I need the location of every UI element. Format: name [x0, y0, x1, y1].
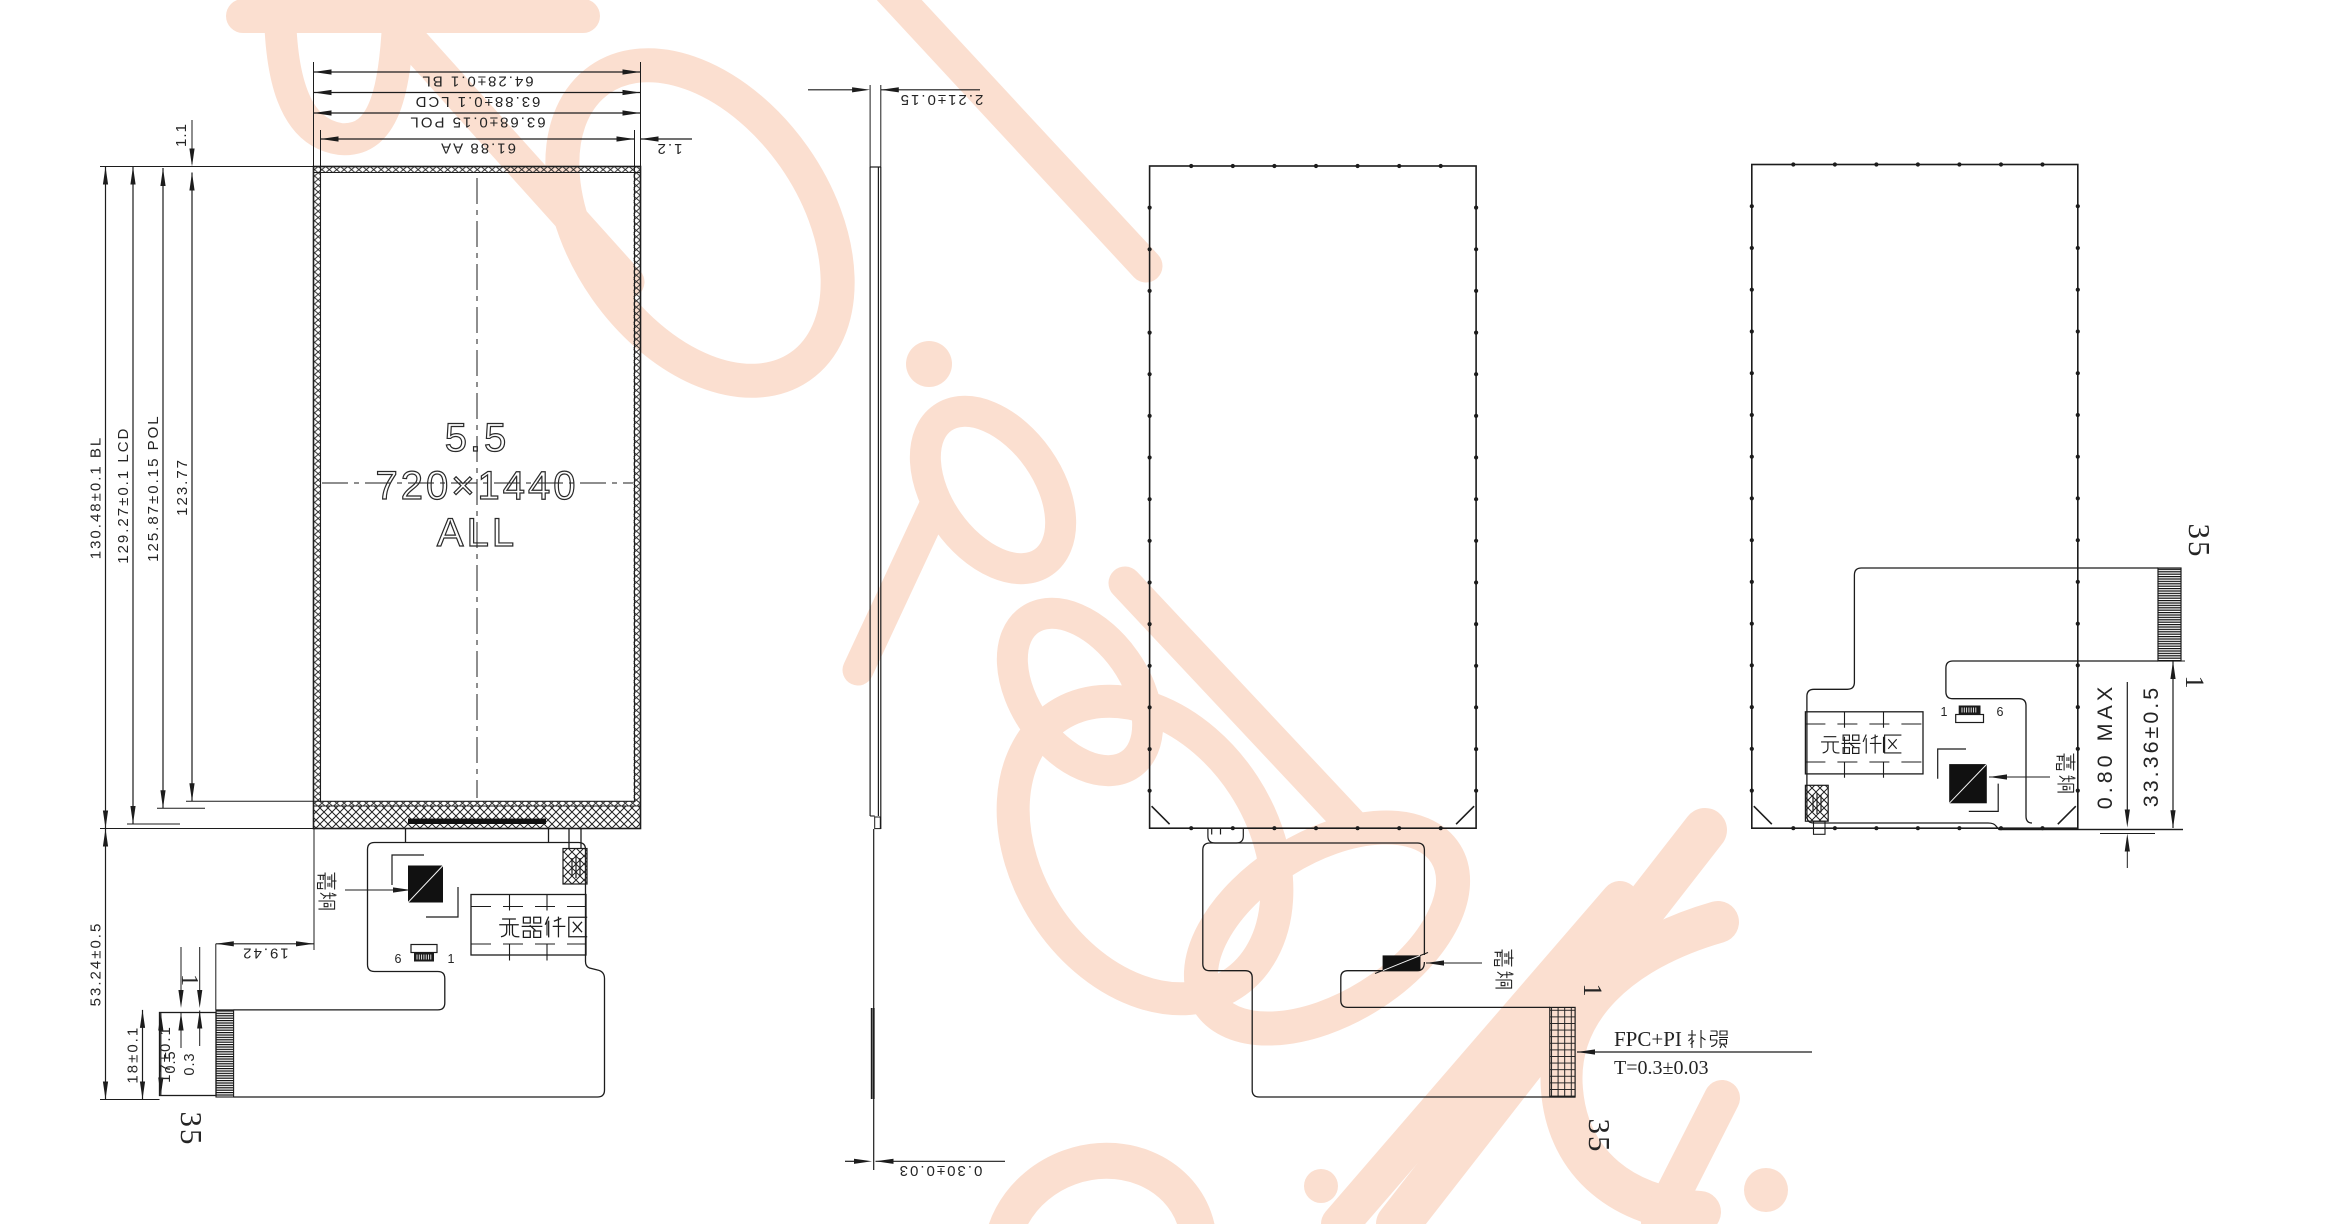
svg-text:63.68±0.15 POL: 63.68±0.15 POL — [408, 114, 545, 131]
svg-text:18±0.1: 18±0.1 — [125, 1026, 142, 1084]
svg-text:1: 1 — [1941, 705, 1948, 719]
svg-text:0.30±0.03: 0.30±0.03 — [898, 1162, 983, 1179]
svg-text:FPC+PI: FPC+PI — [1614, 1027, 1682, 1051]
svg-text:1.2: 1.2 — [656, 140, 683, 157]
svg-text:2.21±0.15: 2.21±0.15 — [899, 91, 984, 108]
svg-text:125.87±0.15 POL: 125.87±0.15 POL — [145, 414, 162, 561]
svg-text:0.3: 0.3 — [182, 1052, 198, 1075]
svg-text:1: 1 — [176, 974, 202, 986]
svg-text:35: 35 — [2182, 524, 2217, 559]
svg-text:63.88±0.1 LCD: 63.88±0.1 LCD — [414, 93, 541, 110]
svg-text:61.88 AA: 61.88 AA — [439, 140, 516, 157]
svg-text:19.42: 19.42 — [241, 944, 289, 961]
svg-text:ALL: ALL — [437, 511, 517, 555]
svg-text:5.5: 5.5 — [445, 416, 510, 460]
svg-text:6: 6 — [1997, 705, 2004, 719]
svg-text:17±0.1: 17±0.1 — [157, 1025, 174, 1083]
svg-text:35: 35 — [174, 1112, 209, 1147]
svg-text:T=0.3±0.03: T=0.3±0.03 — [1614, 1057, 1708, 1079]
svg-text:1: 1 — [1578, 984, 1607, 997]
svg-text:6: 6 — [395, 952, 402, 966]
svg-text:720×1440: 720×1440 — [375, 464, 578, 508]
svg-text:130.48±0.1 BL: 130.48±0.1 BL — [88, 436, 105, 559]
svg-text:0.80 MAX: 0.80 MAX — [2093, 683, 2117, 809]
svg-text:64.28±0.1 BL: 64.28±0.1 BL — [420, 73, 533, 90]
svg-text:33.36±0.5: 33.36±0.5 — [2139, 685, 2163, 808]
svg-text:35: 35 — [1582, 1119, 1617, 1154]
svg-text:1.1: 1.1 — [173, 123, 190, 147]
svg-text:1: 1 — [448, 952, 455, 966]
svg-text:53.24±0.5: 53.24±0.5 — [88, 922, 105, 1007]
svg-text:1: 1 — [2180, 676, 2209, 689]
svg-text:123.77: 123.77 — [174, 458, 191, 516]
svg-text:129.27±0.1 LCD: 129.27±0.1 LCD — [115, 427, 132, 564]
